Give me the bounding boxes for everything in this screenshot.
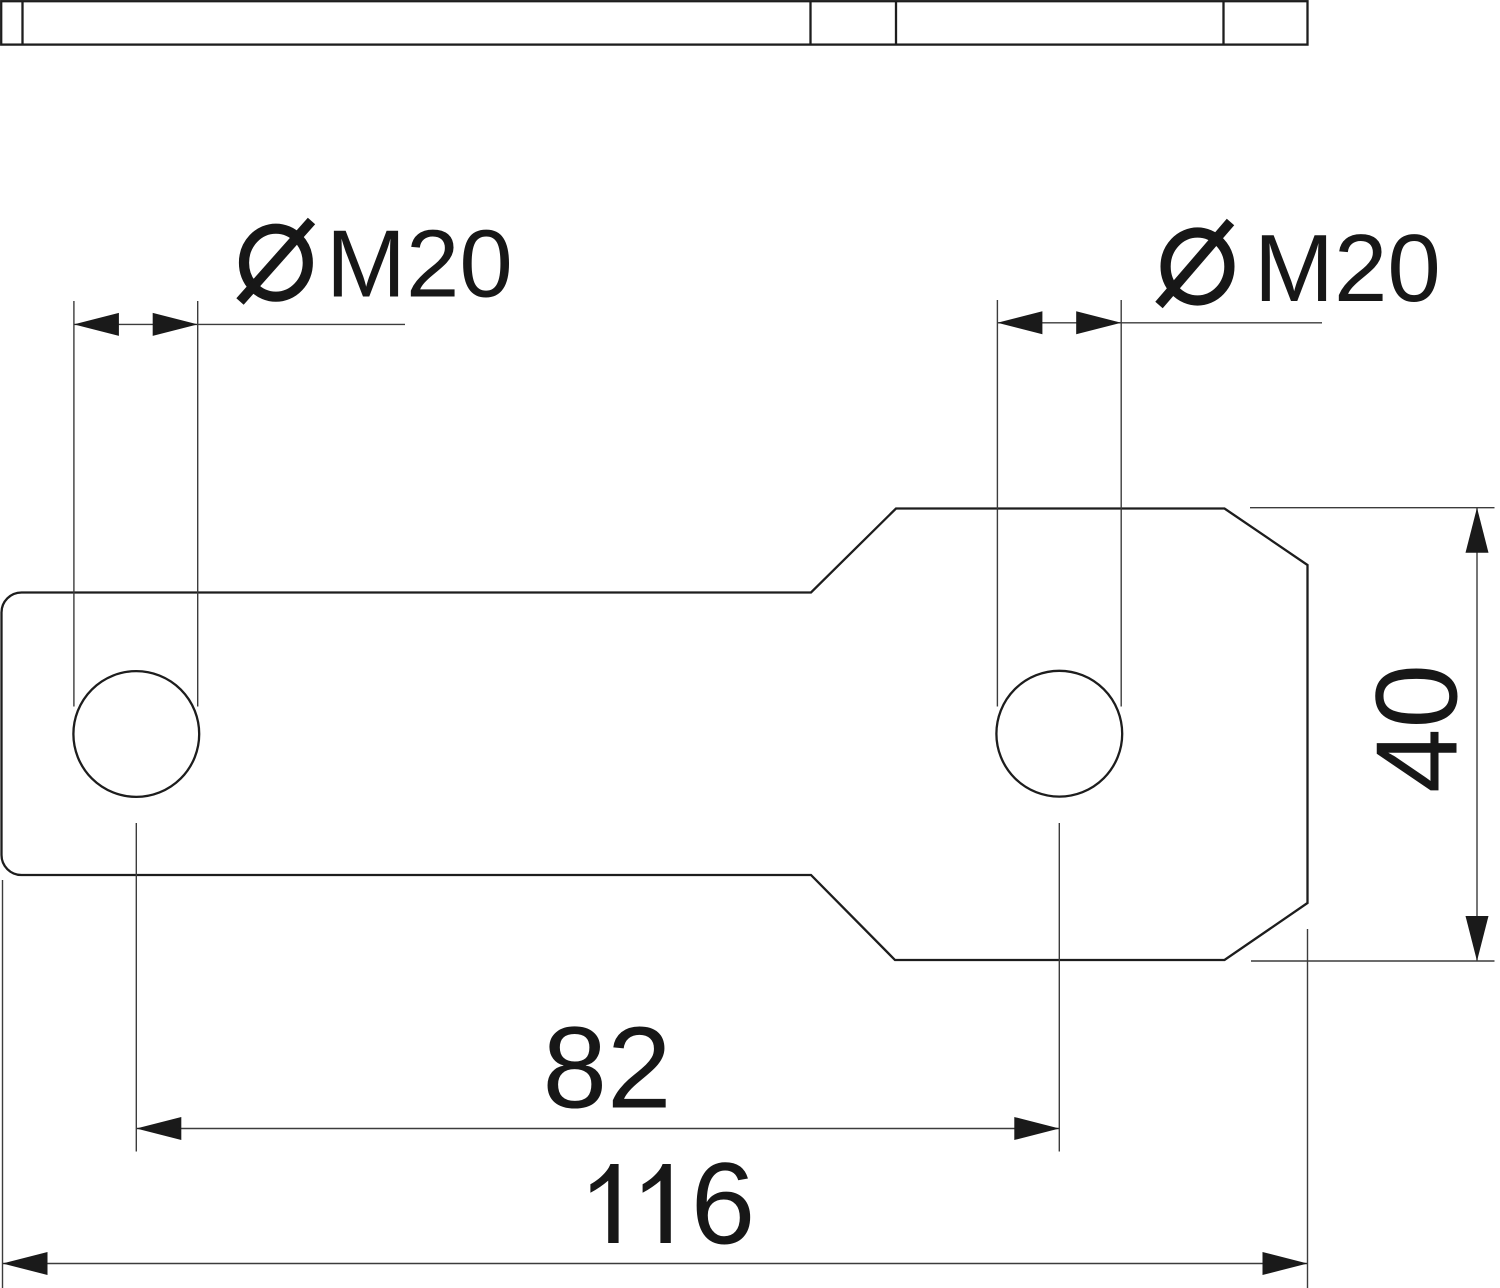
svg-text:82: 82 bbox=[542, 1003, 671, 1133]
svg-text:M20: M20 bbox=[326, 211, 513, 318]
svg-text:6: 6 bbox=[691, 1139, 756, 1269]
svg-text:M20: M20 bbox=[1254, 215, 1441, 322]
svg-text:40: 40 bbox=[1352, 664, 1482, 793]
